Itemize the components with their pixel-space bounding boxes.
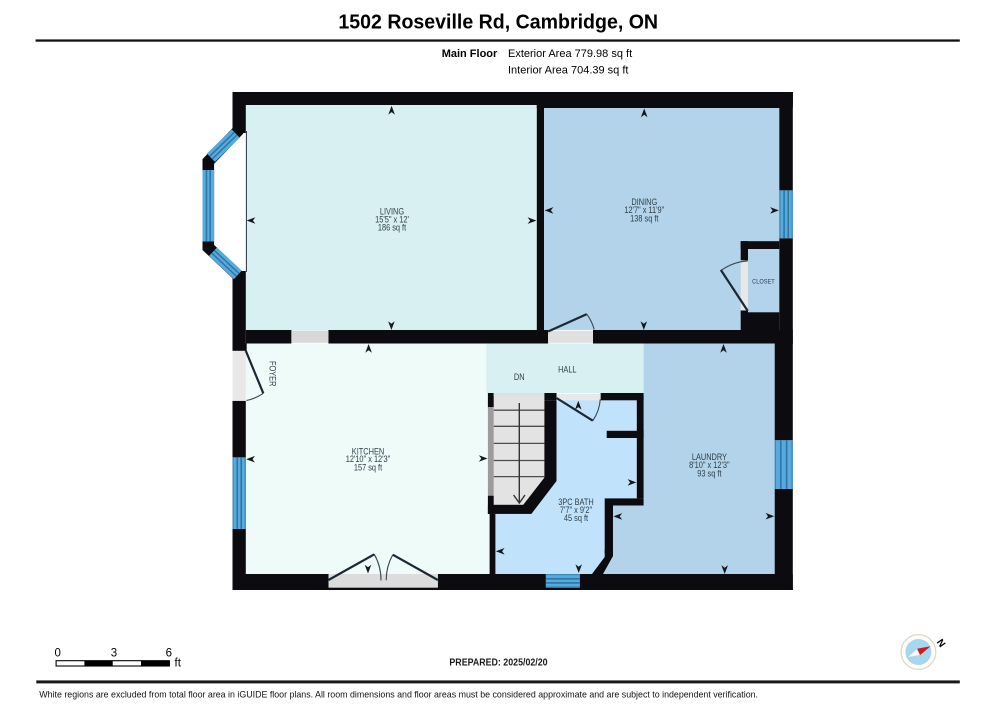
svg-text:Main Floor: Main Floor: [442, 48, 498, 60]
svg-text:138 sq ft: 138 sq ft: [630, 214, 659, 224]
svg-text:FOYER: FOYER: [267, 361, 277, 387]
svg-text:6: 6: [166, 648, 172, 660]
svg-text:3: 3: [111, 648, 117, 660]
svg-text:White regions are excluded fro: White regions are excluded from total fl…: [39, 689, 758, 699]
svg-text:0: 0: [54, 648, 60, 660]
svg-text:CLOSET: CLOSET: [752, 278, 775, 286]
svg-text:PREPARED: 2025/02/20: PREPARED: 2025/02/20: [449, 657, 547, 669]
svg-text:Exterior Area 779.98 sq ft: Exterior Area 779.98 sq ft: [508, 48, 632, 60]
svg-text:DN: DN: [514, 372, 525, 382]
svg-text:157 sq ft: 157 sq ft: [354, 463, 383, 473]
svg-text:186 sq ft: 186 sq ft: [378, 223, 407, 233]
svg-text:1502 Roseville Rd, Cambridge,: 1502 Roseville Rd, Cambridge, ON: [338, 11, 658, 34]
svg-text:Interior Area 704.39 sq ft: Interior Area 704.39 sq ft: [508, 65, 628, 77]
svg-text:HALL: HALL: [558, 365, 577, 375]
svg-text:ft: ft: [175, 658, 182, 670]
svg-text:93 sq ft: 93 sq ft: [697, 469, 722, 479]
svg-text:45 sq ft: 45 sq ft: [564, 514, 589, 524]
